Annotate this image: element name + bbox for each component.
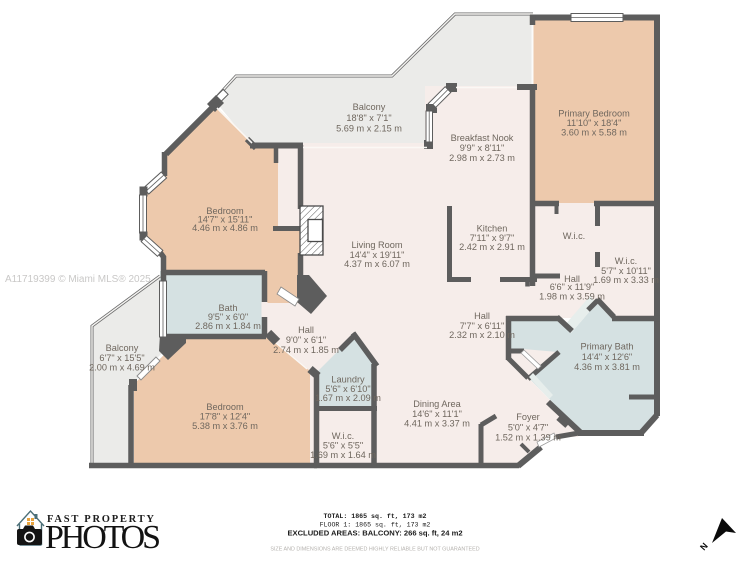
svg-text:17'8" x 12'4": 17'8" x 12'4"	[200, 412, 250, 422]
svg-text:Laundry: Laundry	[331, 375, 365, 385]
svg-text:Bedroom: Bedroom	[206, 402, 244, 412]
svg-text:9'0" x 6'1": 9'0" x 6'1"	[286, 335, 326, 345]
svg-text:14'6" x 11'1": 14'6" x 11'1"	[412, 409, 462, 419]
svg-text:2.42 m x 2.91 m: 2.42 m x 2.91 m	[459, 242, 525, 252]
svg-text:Balcony: Balcony	[353, 102, 386, 112]
svg-text:1.67 m x 2.09 m: 1.67 m x 2.09 m	[315, 393, 381, 403]
svg-text:W.i.c.: W.i.c.	[563, 231, 585, 241]
svg-text:4.37 m x 6.07 m: 4.37 m x 6.07 m	[344, 259, 410, 269]
svg-text:1.69 m x 3.33 m: 1.69 m x 3.33 m	[593, 275, 659, 285]
svg-text:TOTAL: 1865 sq. ft, 173 m2: TOTAL: 1865 sq. ft, 173 m2	[324, 513, 427, 520]
svg-text:14'4" x 12'6": 14'4" x 12'6"	[582, 352, 632, 362]
svg-text:1.98 m x 3.59 m: 1.98 m x 3.59 m	[539, 292, 605, 302]
svg-text:18'8" x 7'1": 18'8" x 7'1"	[346, 113, 391, 123]
svg-text:Breakfast Nook: Breakfast Nook	[451, 133, 514, 143]
svg-text:4.46 m x 4.86 m: 4.46 m x 4.86 m	[192, 223, 258, 233]
svg-text:11'10" x 18'4": 11'10" x 18'4"	[567, 118, 622, 128]
svg-text:2.00 m x 4.69 m: 2.00 m x 4.69 m	[89, 363, 155, 373]
svg-text:EXCLUDED AREAS: BALCONY: 266 s: EXCLUDED AREAS: BALCONY: 266 sq. ft, 24 …	[287, 529, 462, 538]
svg-text:Hall: Hall	[474, 311, 490, 321]
svg-text:Living Room: Living Room	[351, 240, 402, 250]
svg-text:W.i.c.: W.i.c.	[615, 256, 637, 266]
svg-text:Foyer: Foyer	[516, 412, 540, 422]
svg-text:4.41 m x 3.37 m: 4.41 m x 3.37 m	[404, 419, 470, 429]
svg-text:4.36 m x 3.81 m: 4.36 m x 3.81 m	[574, 362, 640, 372]
svg-text:Kitchen: Kitchen	[477, 224, 508, 234]
svg-text:W.i.c.: W.i.c.	[332, 431, 354, 441]
svg-text:SIZE AND DIMENSIONS ARE DEEMED: SIZE AND DIMENSIONS ARE DEEMED HIGHLY RE…	[270, 547, 479, 553]
svg-text:Primary Bath: Primary Bath	[580, 342, 633, 352]
svg-text:5.69 m x 2.15 m: 5.69 m x 2.15 m	[336, 124, 402, 134]
svg-text:FLOOR 1: 1865 sq. ft, 173 m2: FLOOR 1: 1865 sq. ft, 173 m2	[320, 522, 431, 529]
svg-text:Primary Bedroom: Primary Bedroom	[558, 109, 630, 119]
svg-text:1.52 m x 1.39 m: 1.52 m x 1.39 m	[495, 433, 561, 443]
svg-text:2.98 m x 2.73 m: 2.98 m x 2.73 m	[449, 153, 515, 163]
svg-text:Balcony: Balcony	[106, 343, 139, 353]
svg-text:6'7" x 15'5": 6'7" x 15'5"	[99, 353, 144, 363]
svg-text:3.60 m x 5.58 m: 3.60 m x 5.58 m	[561, 128, 627, 138]
svg-text:2.86 m x 1.84 m: 2.86 m x 1.84 m	[195, 321, 261, 331]
svg-text:2.32 m x 2.10 m: 2.32 m x 2.10 m	[449, 330, 515, 340]
svg-text:N: N	[698, 541, 710, 553]
svg-text:A11719399 © Miami MLS® 2025: A11719399 © Miami MLS® 2025	[5, 274, 151, 285]
svg-text:5'0" x 4'7": 5'0" x 4'7"	[508, 423, 548, 433]
svg-text:5'6" x 5'5": 5'6" x 5'5"	[323, 441, 363, 451]
svg-text:2.74 m x 1.85 m: 2.74 m x 1.85 m	[273, 345, 339, 355]
svg-text:Dining Area: Dining Area	[413, 399, 461, 409]
svg-text:1.69 m x 1.64 m: 1.69 m x 1.64 m	[310, 450, 376, 460]
svg-text:Hall: Hall	[298, 325, 314, 335]
svg-text:6'6" x 11'9": 6'6" x 11'9"	[550, 282, 595, 292]
svg-text:PHOTOS: PHOTOS	[45, 519, 161, 556]
svg-text:9'9" x 8'11": 9'9" x 8'11"	[460, 143, 505, 153]
svg-text:5.38 m x 3.76 m: 5.38 m x 3.76 m	[192, 421, 258, 431]
